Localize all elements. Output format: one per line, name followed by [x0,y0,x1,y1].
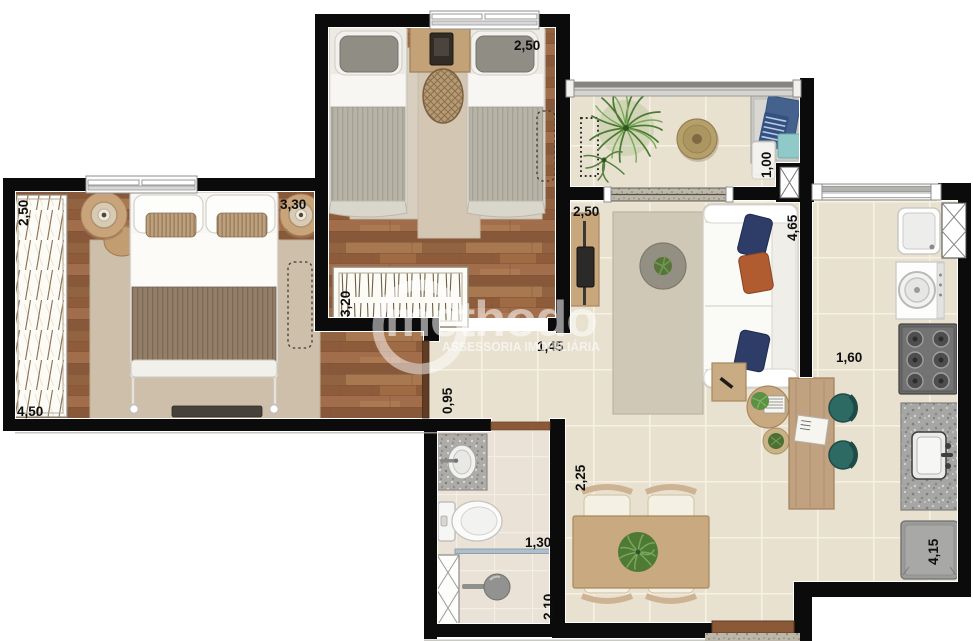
svg-text:3,20: 3,20 [338,291,353,317]
svg-text:1,30: 1,30 [525,535,551,550]
svg-text:1,00: 1,00 [759,152,774,178]
svg-text:2,25: 2,25 [573,464,588,491]
svg-text:2,50: 2,50 [573,204,599,219]
svg-text:1,60: 1,60 [836,350,862,365]
svg-text:2,10: 2,10 [541,594,556,620]
svg-text:3,30: 3,30 [280,197,306,212]
svg-text:4,65: 4,65 [785,214,800,241]
svg-text:4,15: 4,15 [926,538,941,565]
svg-text:ASSESSORIA IMOBILIÁRIA: ASSESSORIA IMOBILIÁRIA [442,339,600,354]
svg-text:2,50: 2,50 [514,38,540,53]
svg-text:0,95: 0,95 [440,387,455,414]
svg-text:methodo: methodo [385,291,597,347]
svg-text:2,50: 2,50 [16,200,31,226]
svg-text:4,50: 4,50 [17,404,43,419]
